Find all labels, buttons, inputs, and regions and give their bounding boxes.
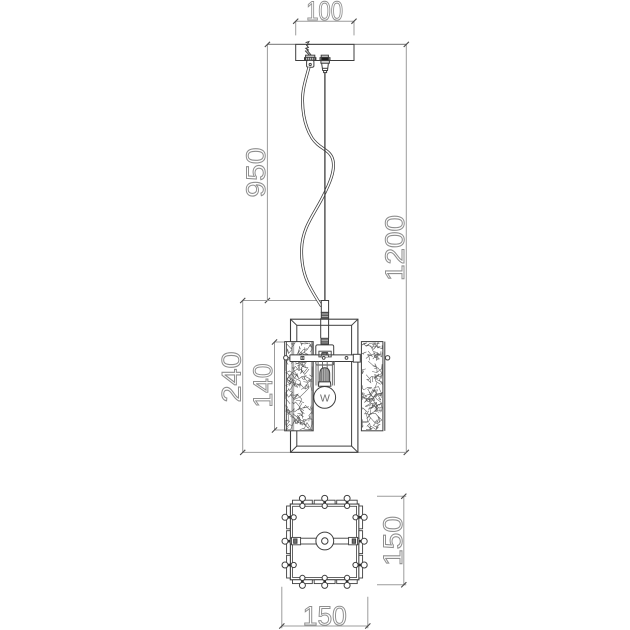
svg-text:W: W (320, 393, 330, 405)
svg-text:150: 150 (303, 601, 347, 630)
svg-text:1200: 1200 (380, 215, 410, 281)
svg-text:150: 150 (378, 516, 408, 566)
svg-text:240: 240 (216, 352, 246, 403)
svg-text:140: 140 (248, 364, 278, 408)
svg-text:100: 100 (306, 0, 343, 26)
svg-text:950: 950 (241, 148, 271, 198)
